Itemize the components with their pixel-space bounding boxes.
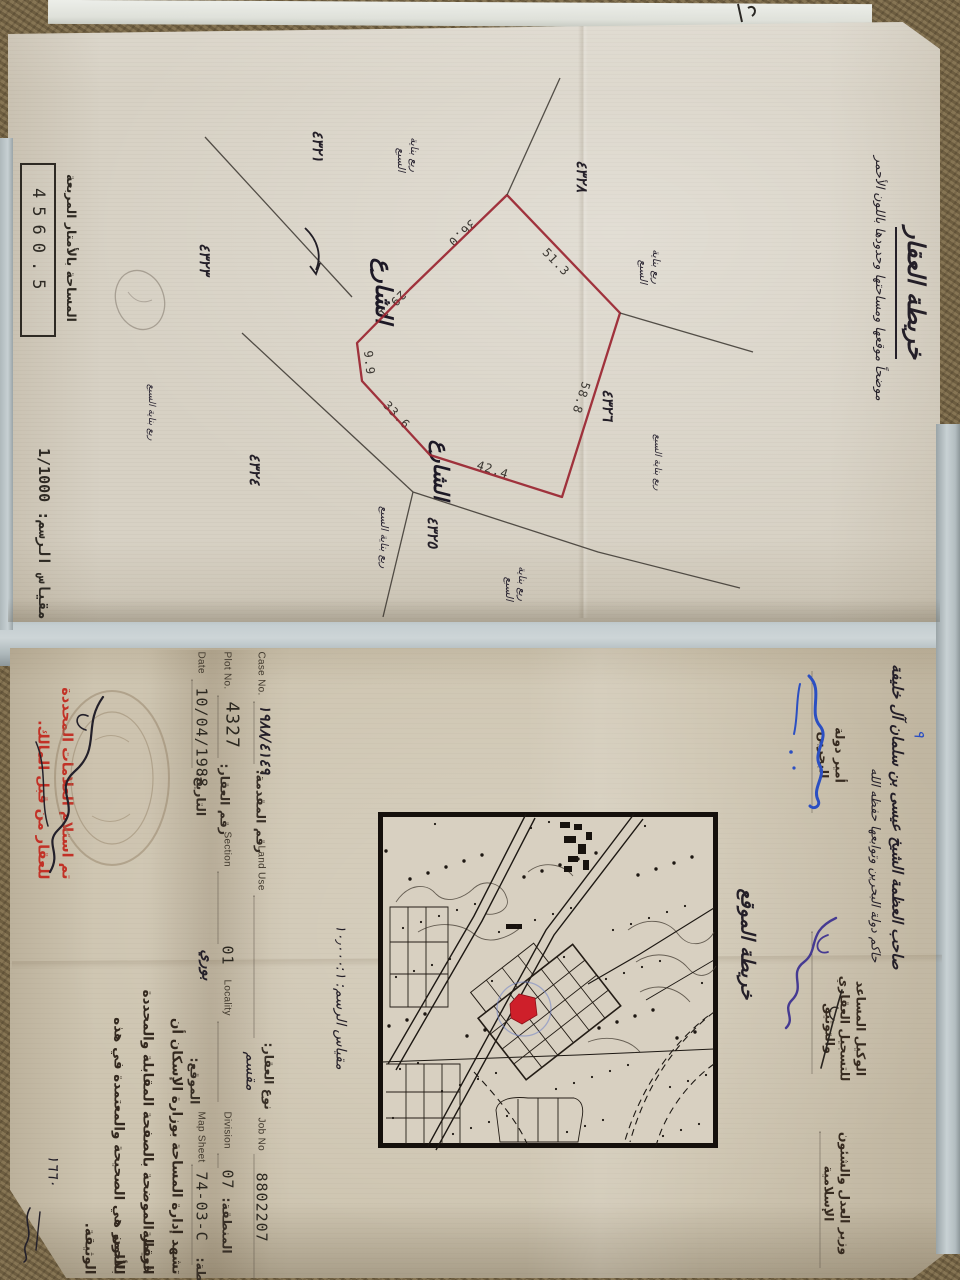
arrow-head: [310, 263, 320, 274]
minister-signature: [821, 990, 842, 1068]
adjacent-boundary-lines: [205, 78, 753, 617]
photographed-land-document: 4560.5 المساحة بالأمتار المربعة مقياس ال…: [0, 0, 960, 1280]
cropped-handwriting-fragment: [738, 4, 755, 22]
margin-scrawl: [24, 1208, 40, 1262]
plot-boundary-red: [357, 195, 620, 497]
registrar-signature: [786, 918, 836, 1028]
ink-overlay: [0, 0, 960, 1280]
emir-signature: [789, 676, 823, 808]
round-seal-stamp: [55, 691, 169, 865]
pencil-scribble: [108, 264, 172, 336]
